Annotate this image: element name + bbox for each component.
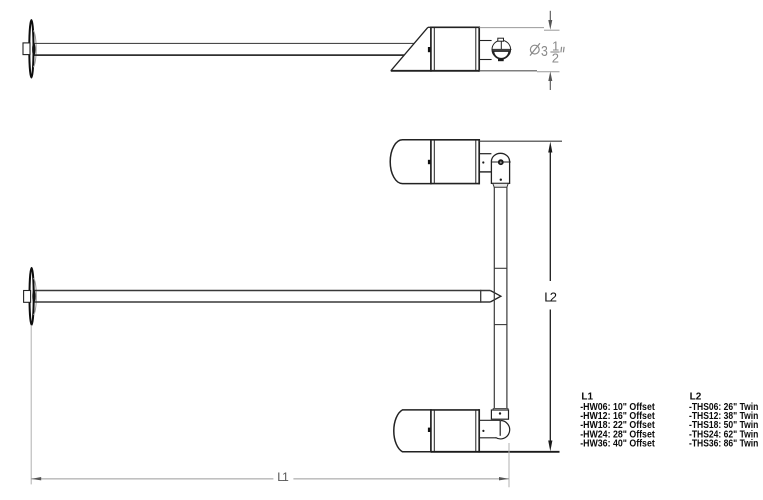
svg-text:2: 2 (552, 51, 559, 66)
svg-text:L2: L2 (544, 290, 557, 305)
svg-text:-HW36: 40" Offset: -HW36: 40" Offset (580, 439, 655, 450)
svg-text:L1: L1 (277, 470, 289, 484)
svg-text:3: 3 (541, 43, 548, 59)
svg-text:-THS36: 86" Twin: -THS36: 86" Twin (689, 439, 758, 450)
